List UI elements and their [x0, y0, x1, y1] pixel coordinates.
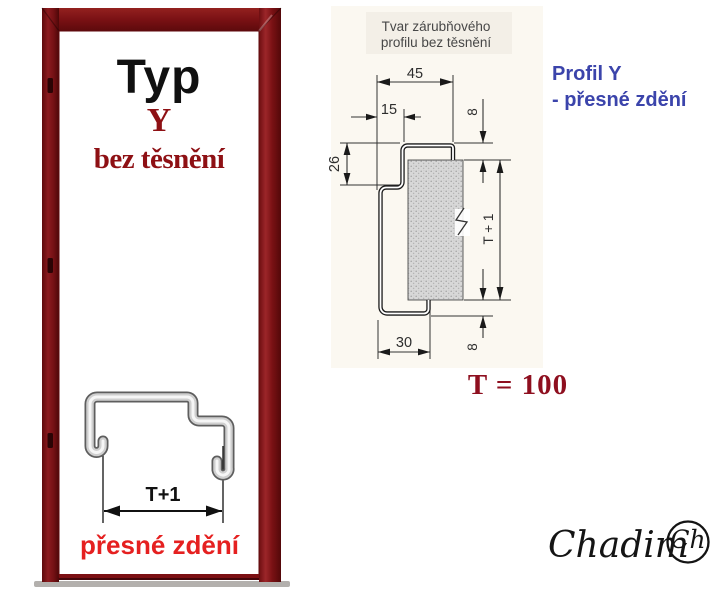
door-type-title: Typ — [59, 50, 259, 105]
formula-label: T = 100 — [437, 369, 599, 402]
wall-section — [408, 160, 463, 300]
profile-note-line2: - přesné zdění — [552, 89, 727, 112]
dim-step-height: 26 — [327, 156, 343, 172]
dim-bottom-overhang: 8 — [465, 343, 480, 351]
door-variant-letter: Y — [59, 102, 259, 140]
catalog-page: 45 15 30 26 8 T + 1 8 Typ Y bez těsnění … — [0, 0, 727, 591]
profile-note-line1: Profil Y — [552, 63, 727, 86]
door-seal-note: bez těsnění — [59, 143, 259, 176]
frame-right-jamb — [259, 8, 281, 582]
hinge-icon — [48, 78, 54, 93]
sketch-caption: přesné zdění — [52, 530, 267, 561]
frame-left-jamb — [42, 8, 59, 582]
hinge-icon — [48, 433, 54, 448]
break-mask — [455, 209, 470, 236]
hinge-icon — [48, 258, 54, 273]
drawing-title-line1: Tvar zárubňového — [355, 19, 517, 35]
drawing-title-line2: profilu bez těsnění — [355, 35, 517, 51]
dim-top-width: 45 — [407, 66, 423, 82]
floor-shadow — [34, 581, 290, 587]
dim-step-offset: 15 — [381, 102, 397, 118]
sketch-dimension-label: T+1 — [103, 484, 223, 507]
logo-monogram: Ch — [667, 525, 709, 554]
frame-bottom-edge — [59, 578, 259, 580]
dim-wall-height: T + 1 — [481, 214, 496, 245]
logo-wordmark: Chadim — [548, 525, 668, 566]
dim-top-overhang: 8 — [465, 108, 480, 116]
dim-bottom-width: 30 — [396, 335, 412, 351]
frame-head — [42, 8, 281, 31]
